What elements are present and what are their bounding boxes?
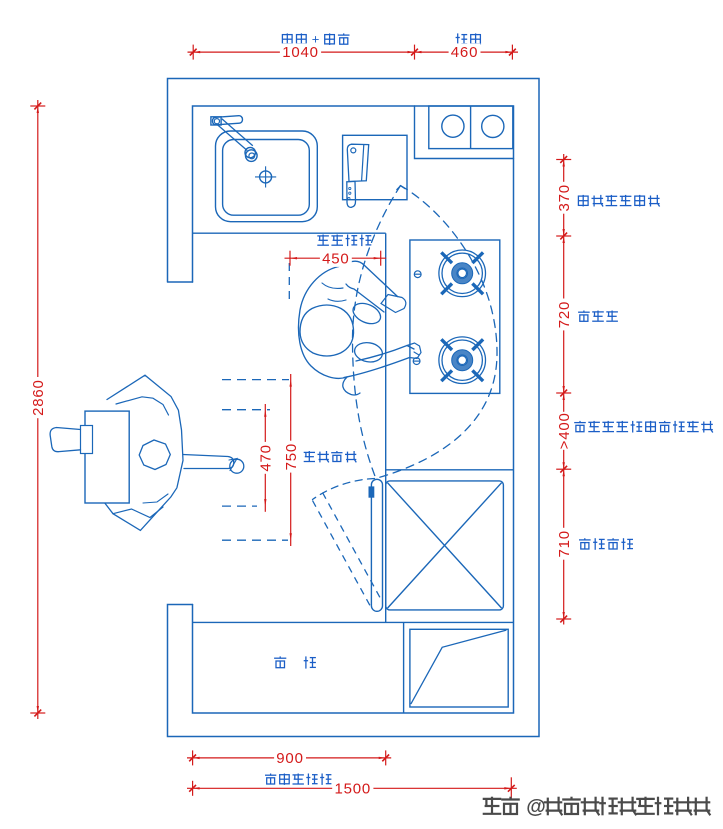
svg-text:1500: 1500 <box>335 780 372 797</box>
svg-text:710: 710 <box>556 530 573 557</box>
svg-text:1040: 1040 <box>282 44 319 61</box>
svg-text:460: 460 <box>451 44 478 61</box>
svg-text:2860: 2860 <box>30 379 47 416</box>
svg-text:@: @ <box>526 796 546 818</box>
svg-text:370: 370 <box>556 184 573 211</box>
svg-text:720: 720 <box>556 301 573 328</box>
svg-text:470: 470 <box>257 444 274 471</box>
svg-text:>400: >400 <box>556 412 573 449</box>
svg-text:750: 750 <box>283 443 300 470</box>
svg-text:900: 900 <box>276 750 303 767</box>
svg-text:450: 450 <box>322 250 349 267</box>
